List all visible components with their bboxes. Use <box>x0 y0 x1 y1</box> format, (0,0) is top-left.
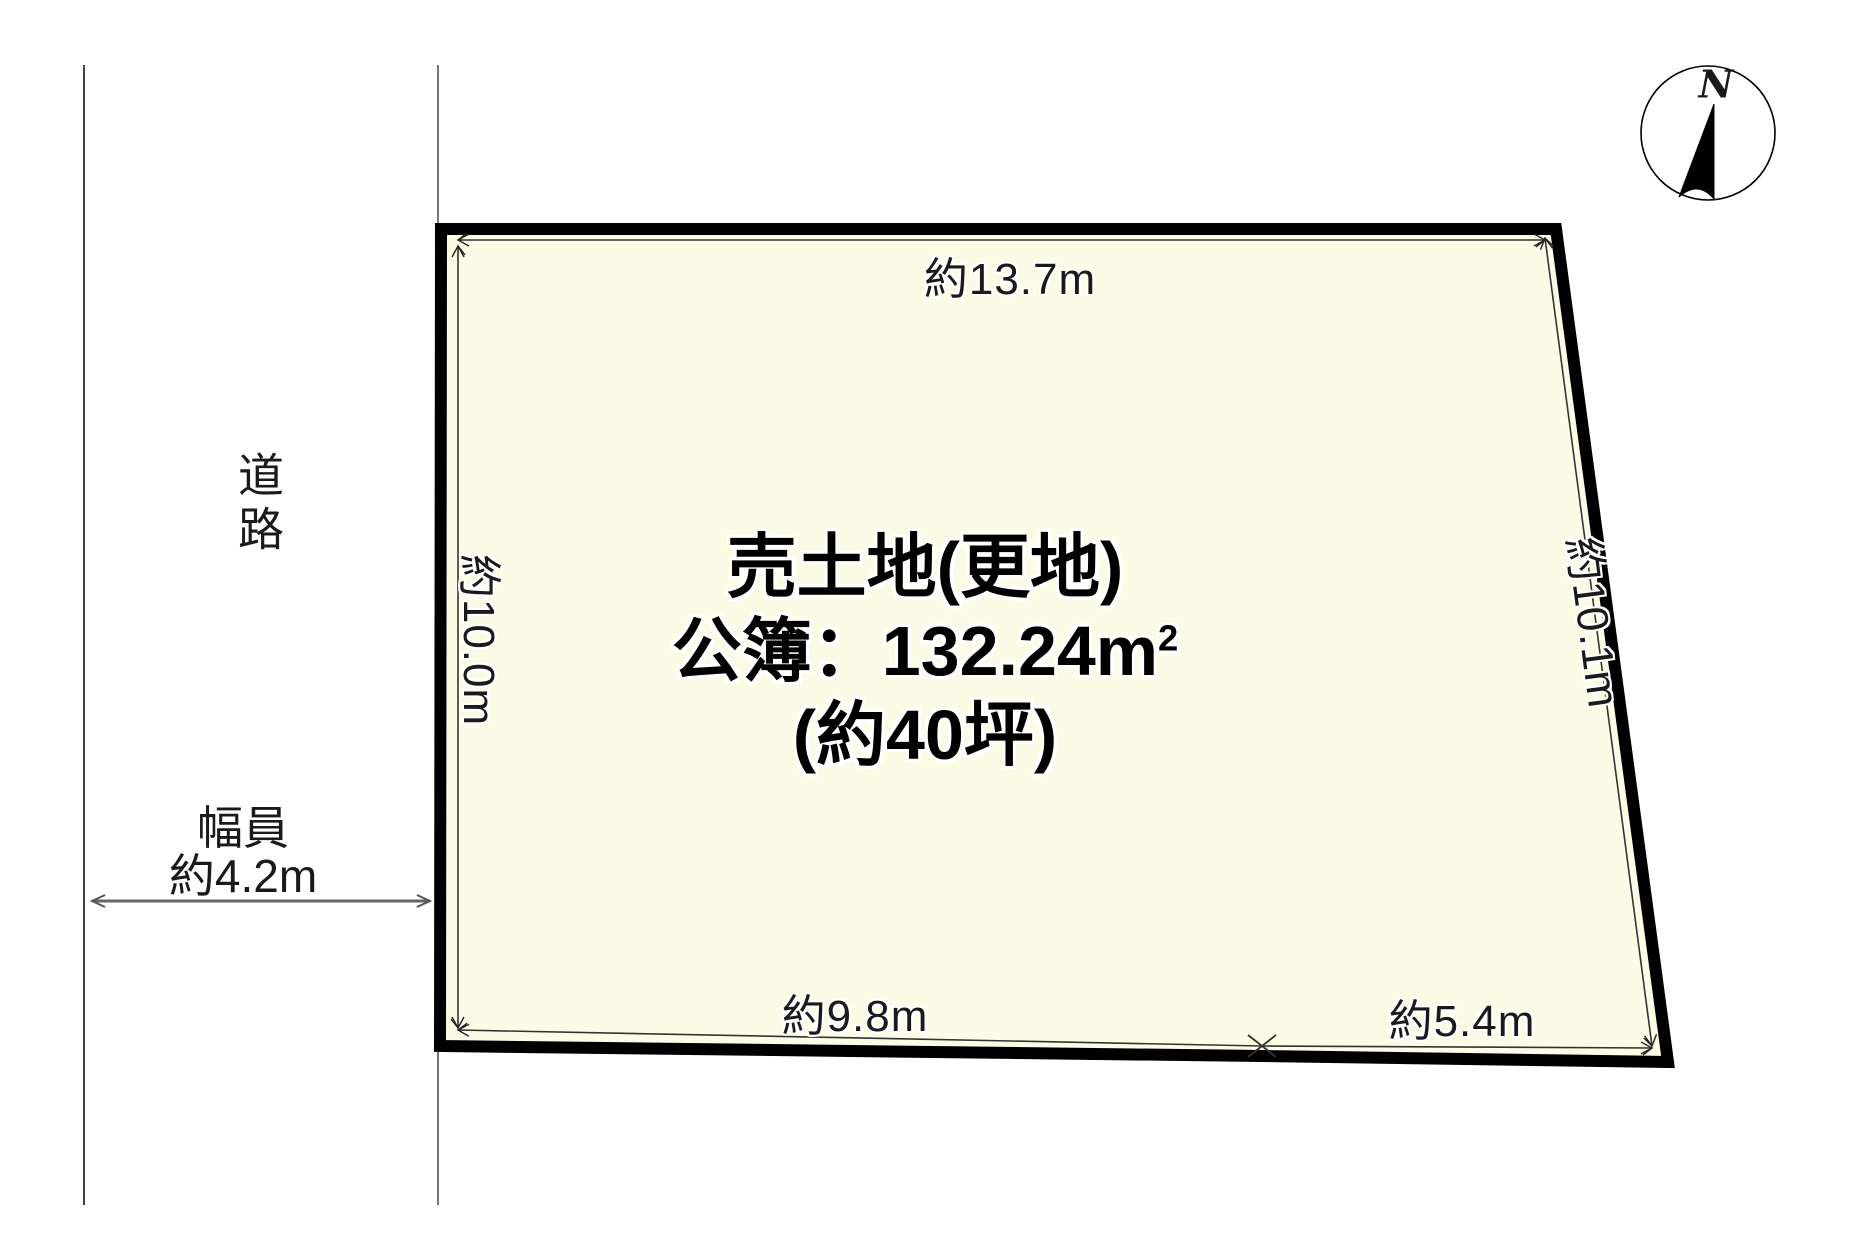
parcel-tsubo-line: (約40坪) <box>672 693 1179 777</box>
dimension-left-label: 約10.0m <box>451 554 515 726</box>
compass-north-label: N <box>1699 62 1734 107</box>
dimension-top-label: 約13.7m <box>924 243 1096 307</box>
parcel-title-line: 売土地(更地) <box>672 525 1179 609</box>
road-width-label: 幅員 約4.2m <box>169 804 317 900</box>
road-width-line1: 幅員 <box>169 804 317 852</box>
road-name-label: 道路 <box>225 451 291 559</box>
road-width-line2: 約4.2m <box>169 852 317 900</box>
parcel-area-superscript: 2 <box>1158 618 1178 659</box>
parcel-area-line: 公簿：132.24m2 <box>672 609 1179 693</box>
dimension-bottom-left-label: 約9.8m <box>782 980 929 1044</box>
parcel-info-text: 売土地(更地) 公簿：132.24m2 (約40坪) <box>672 525 1179 777</box>
parcel-area-value: 公簿：132.24m <box>672 612 1158 690</box>
dimension-bottom-right-label: 約5.4m <box>1389 985 1536 1049</box>
lot-plan-canvas: N 道路 幅員 約4.2m 約13.7m 約10.0m 約10.1m 約9.8m… <box>0 0 1871 1255</box>
